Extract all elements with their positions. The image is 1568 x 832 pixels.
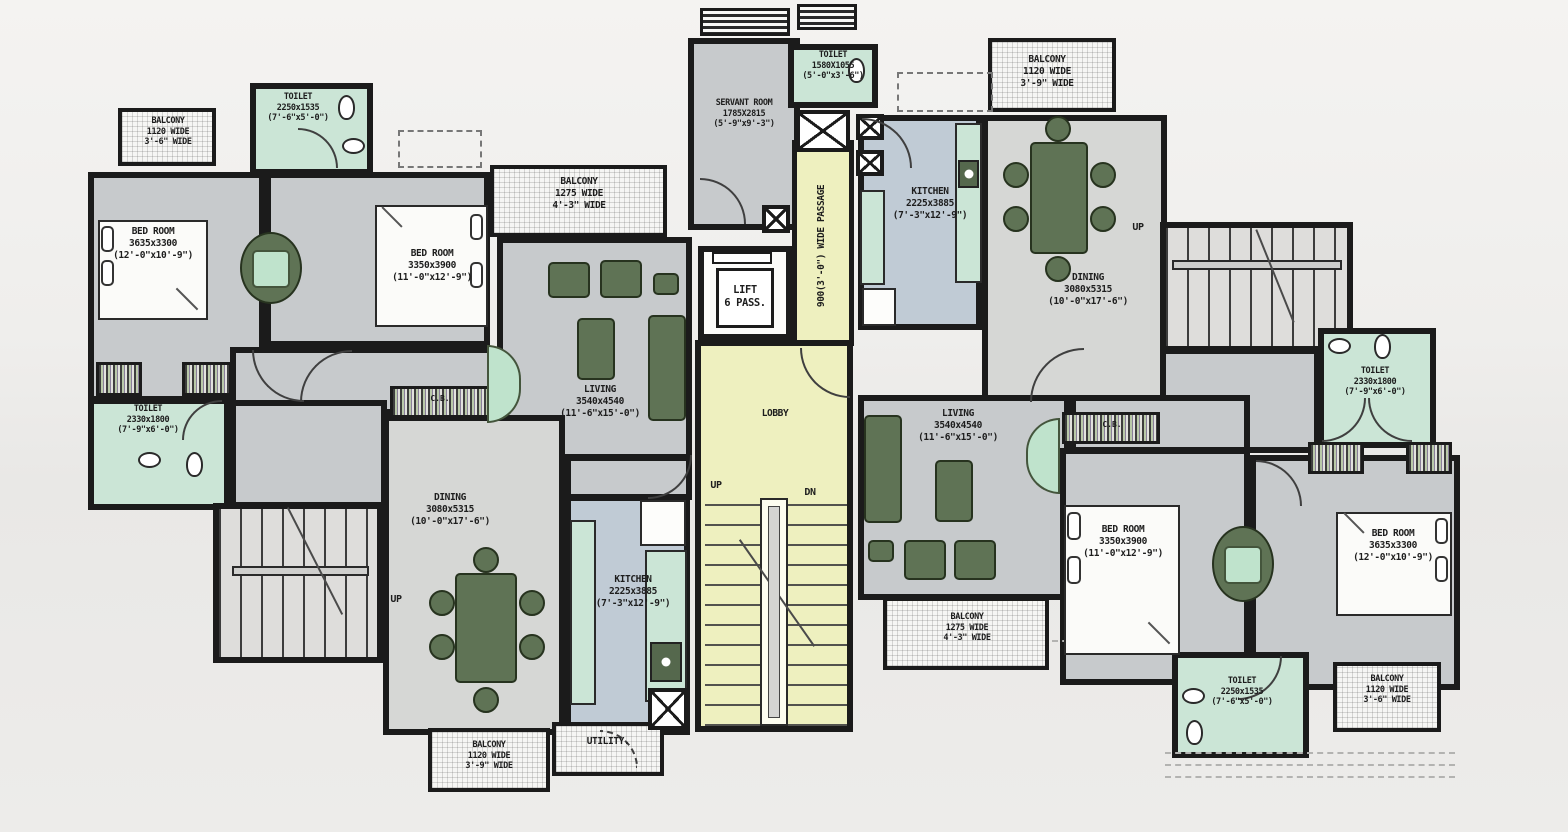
room-label-toilet-tl: TOILET2250x1535(7'-6"x5'-0") <box>252 92 344 124</box>
kitchen-sink <box>650 642 682 682</box>
chair-symbol <box>473 687 499 713</box>
dresser-seat-symbol <box>252 250 290 288</box>
side-table-symbol <box>653 273 679 295</box>
wc-symbol <box>1186 720 1203 745</box>
room-label-balcony-tr: BALCONY1120 WIDE3'-9" WIDE <box>988 54 1106 90</box>
wardrobe <box>1308 442 1364 474</box>
room-label-kitchen-right: KITCHEN2225x3885(7'-3"x12'-9") <box>880 186 980 222</box>
sofa-symbol <box>864 415 902 523</box>
room-label-living-left: LIVING3540x4540(11'-6"x15'-0") <box>535 384 665 420</box>
chair-symbol <box>519 634 545 660</box>
armchair-symbol <box>904 540 946 580</box>
room-label-balcony-br: BALCONY1120 WIDE3'-6" WIDE <box>1336 674 1438 706</box>
dining-table-symbol <box>1030 142 1088 254</box>
room-label-balcony-bl: BALCONY1120 WIDE3'-9" WIDE <box>432 740 546 772</box>
planter-box <box>700 8 790 36</box>
duct-shaft <box>762 205 790 233</box>
chair-symbol <box>519 590 545 616</box>
ground-line <box>1165 752 1455 754</box>
room-label-toilet-top: TOILET1580X1055(5'-0"x3'-6") <box>790 50 876 82</box>
kitchen-counter <box>570 520 596 705</box>
pillow-symbol <box>101 260 114 286</box>
dresser-seat-symbol <box>1224 546 1262 584</box>
room-label-toilet-left: TOILET2330x1800(7'-9"x6'-0") <box>92 404 204 436</box>
wardrobe-label: C.B. <box>1092 420 1132 430</box>
kitchen-sink <box>958 160 979 188</box>
wardrobe-label: C.B. <box>420 394 460 404</box>
chair-symbol <box>1045 116 1071 142</box>
room-label-bedroom-right: BED ROOM3350x3900(11'-0"x12'-9") <box>1070 524 1176 560</box>
chair-symbol <box>473 547 499 573</box>
lift-door-slot <box>712 252 772 264</box>
room-label-balcony-left: BALCONY1275 WIDE4'-3" WIDE <box>500 176 658 212</box>
room-label-toilet-br: TOILET2250x1535(7'-6"x5'-0") <box>1184 676 1300 708</box>
room-label-bedroom-far-right: BED ROOM3635x3300(12'-0"x10'-9") <box>1338 528 1448 564</box>
room-label-toilet-right: TOILET2330x1800(7'-9"x6'-0") <box>1320 366 1430 398</box>
lift-label: LIFT6 PASS. <box>700 284 790 310</box>
room-label-dining-left: DINING3080x5315(10'-0"x17'-6") <box>390 492 510 528</box>
basin-symbol <box>342 138 365 154</box>
passage-label: 900(3'-0") WIDE PASSAGE <box>816 146 828 346</box>
chair-symbol <box>1003 162 1029 188</box>
chair-symbol <box>429 634 455 660</box>
wardrobe <box>1406 442 1452 474</box>
dining-table-symbol <box>455 573 517 683</box>
armchair-symbol <box>600 260 642 298</box>
wc-symbol <box>1374 334 1391 359</box>
room-label-servant: SERVANT ROOM1785X2815(5'-9"x9'-3") <box>692 98 796 130</box>
room-label-bedroom-tl: BED ROOM3635x3300(12'-0"x10'-9") <box>98 226 208 262</box>
coffee-table-symbol <box>577 318 615 380</box>
room-label-utility: UTILITY. <box>558 736 658 748</box>
open-terrace-dashed <box>897 72 993 112</box>
duct-shaft <box>648 688 688 730</box>
chair-symbol <box>1090 162 1116 188</box>
stair-rail-left <box>232 566 369 576</box>
wardrobe <box>182 362 232 396</box>
corridor-left-floor <box>230 400 387 508</box>
lobby-label: LOBBY <box>715 408 835 420</box>
stair-down-label: DN <box>796 487 824 500</box>
room-label-balcony-right: BALCONY1275 WIDE4'-3" WIDE <box>902 612 1032 644</box>
pillow-symbol <box>1067 556 1081 584</box>
chair-symbol <box>1090 206 1116 232</box>
ground-line <box>1165 764 1455 766</box>
open-terrace-dashed <box>398 130 482 168</box>
armchair-symbol <box>548 262 590 298</box>
stair-up-label: UP <box>702 480 730 493</box>
stair-up-label: UP <box>1124 222 1152 235</box>
basin-symbol <box>138 452 161 468</box>
room-label-kitchen-left: KITCHEN2225x3885(7'-3"x12'-9") <box>578 574 688 610</box>
coffee-table-symbol <box>935 460 973 522</box>
wc-symbol <box>186 452 203 477</box>
planter-box <box>797 4 857 30</box>
kitchen-appliance <box>862 288 896 326</box>
ground-line <box>1165 776 1455 778</box>
stair-rail-right <box>1172 260 1342 270</box>
stair-divider-inner <box>768 506 780 718</box>
chair-symbol <box>1003 206 1029 232</box>
floor-plan-canvas: BALCONY1120 WIDE3'-6" WIDE TOILET2250x15… <box>0 0 1568 832</box>
armchair-symbol <box>954 540 996 580</box>
kitchen-appliance <box>640 500 686 546</box>
room-label-dining-right: DINING3080x5315(10'-0"x17'-6") <box>1032 272 1144 308</box>
stair-up-label: UP <box>382 594 410 607</box>
basin-symbol <box>1328 338 1351 354</box>
room-label-balcony-tl: BALCONY1120 WIDE3'-6" WIDE <box>120 116 216 148</box>
room-label-living-right: LIVING3540x4540(11'-6"x15'-0") <box>898 408 1018 444</box>
wardrobe <box>96 362 142 396</box>
chair-symbol <box>429 590 455 616</box>
side-table-symbol <box>868 540 894 562</box>
room-label-bedroom-tl2: BED ROOM3350x3900(11'-0"x12'-9") <box>380 248 484 284</box>
pillow-symbol <box>470 214 483 240</box>
